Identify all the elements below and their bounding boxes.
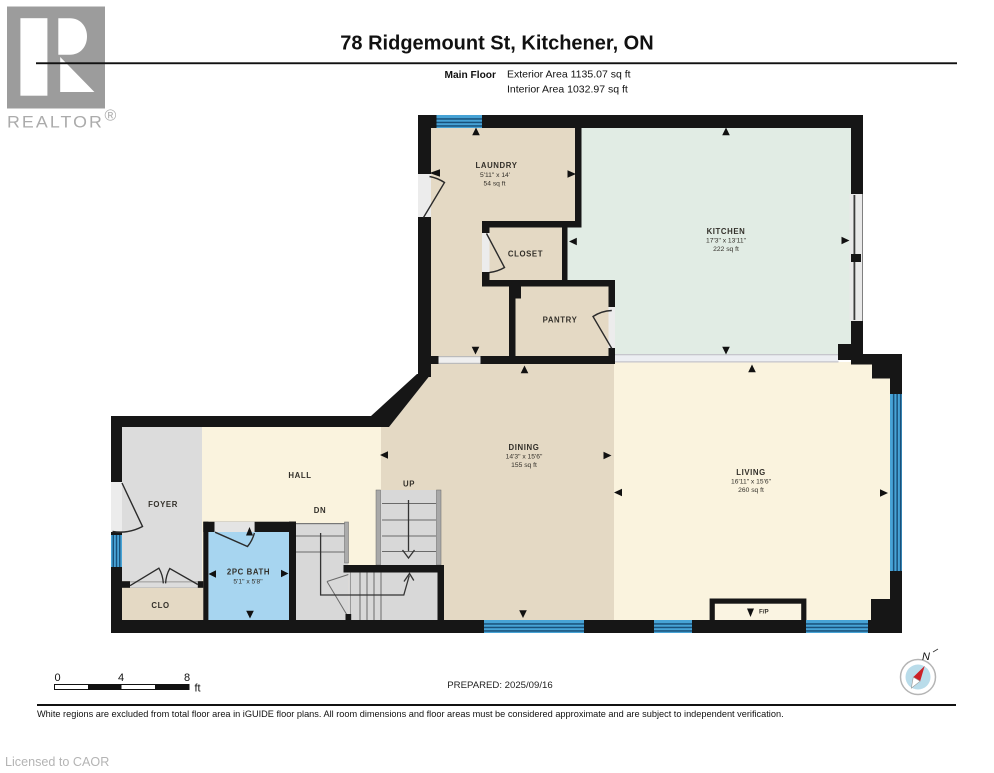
svg-text:17'3" x 13'11": 17'3" x 13'11" (706, 238, 747, 245)
svg-text:8: 8 (184, 672, 190, 684)
svg-text:0: 0 (54, 672, 60, 684)
svg-text:260 sq ft: 260 sq ft (738, 487, 764, 494)
svg-text:F/P: F/P (759, 609, 769, 616)
svg-text:Exterior Area 1135.07 sq ft: Exterior Area 1135.07 sq ft (507, 69, 631, 81)
svg-text:REALTOR: REALTOR (7, 112, 104, 131)
svg-text:PANTRY: PANTRY (543, 316, 578, 325)
svg-text:5'11" x 14': 5'11" x 14' (480, 172, 510, 179)
svg-text:CLO: CLO (151, 601, 169, 610)
svg-text:UP: UP (403, 480, 415, 489)
svg-text:White regions are excluded fro: White regions are excluded from total fl… (37, 709, 784, 719)
svg-text:LIVING: LIVING (736, 468, 766, 477)
svg-text:Interior Area 1032.97 sq ft: Interior Area 1032.97 sq ft (507, 84, 628, 96)
svg-text:14'3" x 15'6": 14'3" x 15'6" (506, 454, 543, 461)
svg-text:KITCHEN: KITCHEN (707, 227, 746, 236)
svg-text:HALL: HALL (288, 471, 311, 480)
svg-text:LAUNDRY: LAUNDRY (475, 161, 517, 170)
svg-text:16'11" x 15'6": 16'11" x 15'6" (731, 479, 772, 486)
svg-text:78 Ridgemount St, Kitchener,: 78 Ridgemount St, Kitchener, ON (340, 33, 653, 55)
svg-text:Licensed to CAOR: Licensed to CAOR (5, 755, 109, 768)
svg-text:54 sq ft: 54 sq ft (484, 180, 506, 187)
svg-text:222 sq ft: 222 sq ft (713, 246, 739, 253)
svg-text:PREPARED: 2025/09/16: PREPARED: 2025/09/16 (447, 680, 552, 691)
svg-text:ft: ft (195, 683, 201, 695)
svg-text:FOYER: FOYER (148, 500, 178, 509)
svg-text:DN: DN (314, 506, 326, 515)
svg-text:DINING: DINING (509, 443, 540, 452)
svg-text:5'1" x 5'8": 5'1" x 5'8" (233, 578, 263, 585)
svg-text:Main Floor: Main Floor (445, 70, 497, 81)
svg-text:4: 4 (118, 672, 124, 684)
svg-text:2PC BATH: 2PC BATH (227, 568, 270, 577)
svg-text:155 sq ft: 155 sq ft (511, 462, 537, 469)
svg-text:N: N (922, 651, 930, 663)
svg-text:CLOSET: CLOSET (508, 250, 543, 259)
svg-text:®: ® (105, 108, 117, 125)
